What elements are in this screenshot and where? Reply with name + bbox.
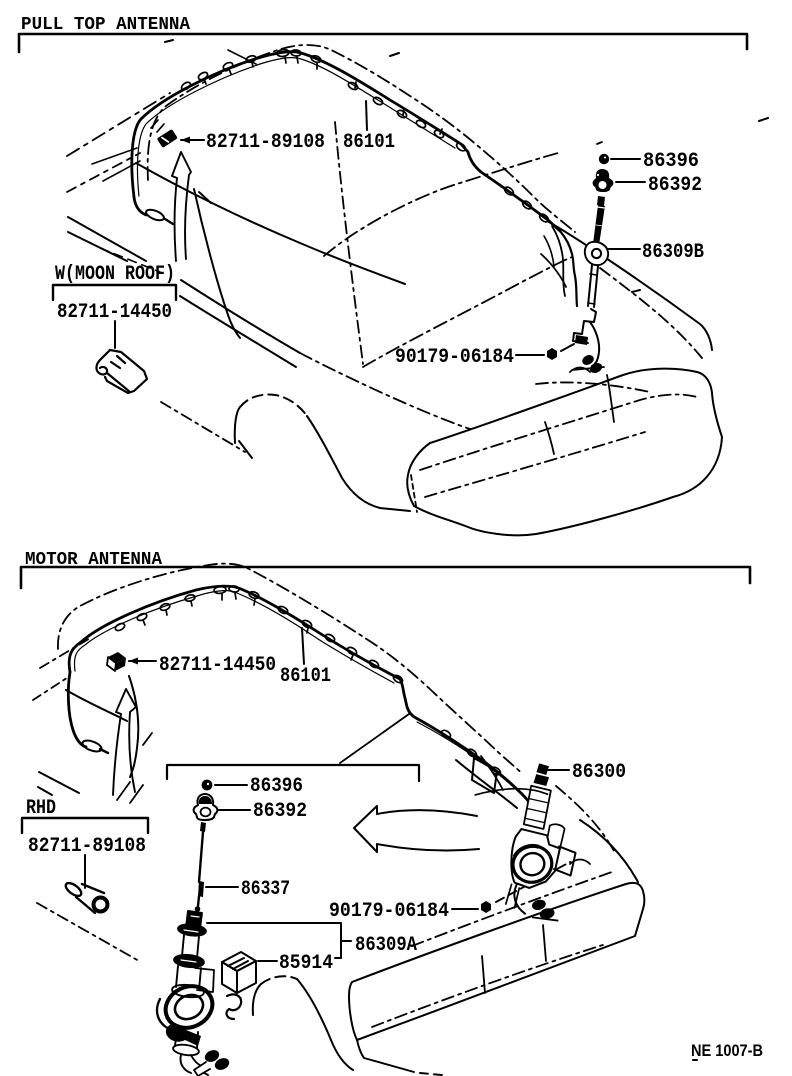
svg-text:86101: 86101 [343,131,395,154]
svg-text:90179-06184: 90179-06184 [395,346,514,369]
svg-text:86300: 86300 [572,761,626,784]
svg-text:W(MOON ROOF): W(MOON ROOF) [55,263,175,286]
svg-text:86392: 86392 [648,174,702,197]
svg-text:86337: 86337 [241,878,290,901]
svg-text:PULL TOP ANTENNA: PULL TOP ANTENNA [21,15,190,35]
svg-text:82711-14450: 82711-14450 [159,654,276,677]
svg-text:86309A: 86309A [355,934,417,957]
svg-text:86392: 86392 [253,800,307,823]
svg-text:85914: 85914 [279,952,333,975]
svg-text:86396: 86396 [643,150,699,173]
svg-text:NE 1007-B: NE 1007-B [691,1041,763,1060]
svg-text:RHD: RHD [26,797,56,820]
svg-text:82711-89108: 82711-89108 [28,835,146,858]
svg-text:86101: 86101 [280,665,331,688]
svg-text:86309B: 86309B [642,241,704,264]
svg-text:86396: 86396 [250,775,303,798]
svg-text:90179-06184: 90179-06184 [329,900,449,923]
svg-text:82711-89108: 82711-89108 [206,131,325,154]
